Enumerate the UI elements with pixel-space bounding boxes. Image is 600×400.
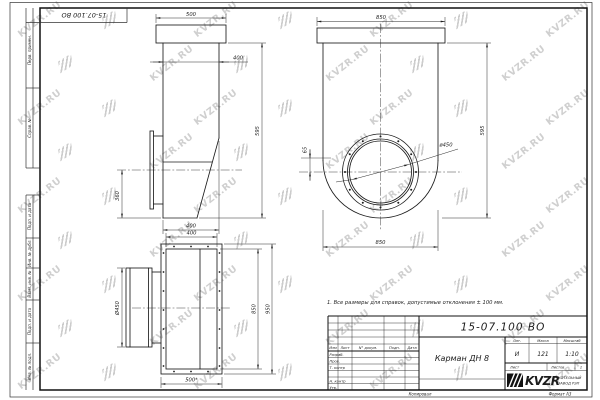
tb-scale-value: 1:10: [565, 351, 579, 358]
dim-plan-top: 400: [187, 231, 198, 237]
tb-row-t-contr: Т. контр: [330, 366, 346, 370]
margin-columns: Перв. примен. Справ. № Подп. и дата Инв.…: [26, 8, 40, 390]
tb-col-podp: Подп.: [389, 346, 400, 350]
side-view: [299, 24, 462, 230]
tb-lit-value: И: [515, 351, 520, 358]
dim-front-width: 400: [233, 56, 244, 62]
tb-scale-label: Масштаб: [563, 339, 581, 343]
footer-format: Формат А3: [549, 392, 572, 397]
dim-plan-right-inner: 850: [252, 303, 258, 314]
tb-sheets-label: Листов: [550, 366, 564, 370]
drawing-note: 1. Все размеры для справок, допустимые о…: [327, 300, 504, 306]
corner-stamp: 15-07.100 ВО: [26, 8, 127, 23]
margin-label-podp-data-1: Подп. и дата: [27, 202, 32, 230]
margin-label-podp-data-2: Подп. и дата: [27, 307, 32, 335]
tb-mass-label: Масса: [537, 339, 548, 343]
dim-plan-right-outer: 950: [266, 303, 272, 314]
company-logo: KVZR КОТЕЛЬНЫЙ ЗАВОД РЭП: [507, 374, 582, 389]
front-view: [117, 25, 242, 218]
tb-part-name: Карман ДН 8: [435, 354, 489, 363]
margin-label-vzam-inv: Взам. инв. №: [27, 270, 32, 297]
dim-side-top: 850: [376, 15, 387, 21]
tb-row-n-contr: Н. контр: [330, 380, 347, 384]
dim-front-top: 500: [186, 12, 197, 18]
blueprint-sheet: KVZR.RUKVZR.RUKVZR.RUKVZR.RUKVZR.RUKVZR.…: [0, 0, 600, 400]
plan-view: [126, 244, 230, 374]
tb-logo-text: KVZR: [525, 374, 560, 388]
dim-side-diameter: ø450: [438, 143, 453, 149]
dim-side-right: 595: [480, 125, 486, 136]
dim-plan-bottom: 500*: [185, 378, 198, 384]
tb-lit-label: Лит.: [512, 339, 521, 343]
tb-doc-number: 15-07.100 ВО: [461, 322, 546, 334]
footer: Копировал Формат А3: [409, 392, 572, 397]
front-view-dimensions: 500 400 595 360 400: [115, 12, 266, 234]
tb-sheets-value: 1: [580, 366, 582, 370]
plan-bolt-holes: [163, 246, 221, 373]
plan-view-dimensions: 400 Ø450 850 950 500*: [114, 231, 276, 389]
dim-plan-left: Ø450: [114, 300, 121, 316]
footer-copied: Копировал: [409, 392, 432, 397]
tb-row-utv: Утв.: [330, 386, 338, 390]
margin-label-perv-primen: Перв. примен.: [27, 35, 32, 65]
dim-front-left: 360: [115, 190, 121, 201]
tb-col-data: Дата: [406, 346, 416, 350]
tb-mass-value: 121: [537, 351, 548, 358]
dim-side-offset: 65: [303, 146, 309, 153]
tb-row-razrab: Разраб.: [330, 353, 344, 357]
dim-side-bottom: 850: [376, 240, 387, 246]
tb-col-doc: N° докум.: [359, 346, 377, 350]
title-block: Изм Лист N° докум. Подп. Дата Разраб. Пр…: [328, 316, 587, 390]
dim-front-height: 595: [255, 125, 261, 136]
tb-col-list: Лист: [339, 346, 350, 350]
tb-logo-sub2: ЗАВОД РЭП: [558, 382, 580, 386]
tb-sheet-label: Лист: [509, 366, 520, 370]
margin-label-inv-podl: Инв. № подл.: [27, 353, 32, 381]
tb-logo-sub1: КОТЕЛЬНЫЙ: [558, 375, 582, 380]
margin-label-inv-dubl: Инв. № дубл.: [27, 239, 32, 266]
tb-col-izm: Изм: [329, 346, 337, 350]
margin-label-sprav-n: Справ. №: [27, 118, 32, 137]
drawing-canvas: Перв. примен. Справ. № Подп. и дата Инв.…: [0, 0, 600, 400]
corner-stamp-doc-number: 15-07.100 ВО: [61, 11, 106, 19]
tb-row-prov: Пров.: [330, 360, 340, 364]
dim-front-bottom: 400: [186, 224, 197, 230]
